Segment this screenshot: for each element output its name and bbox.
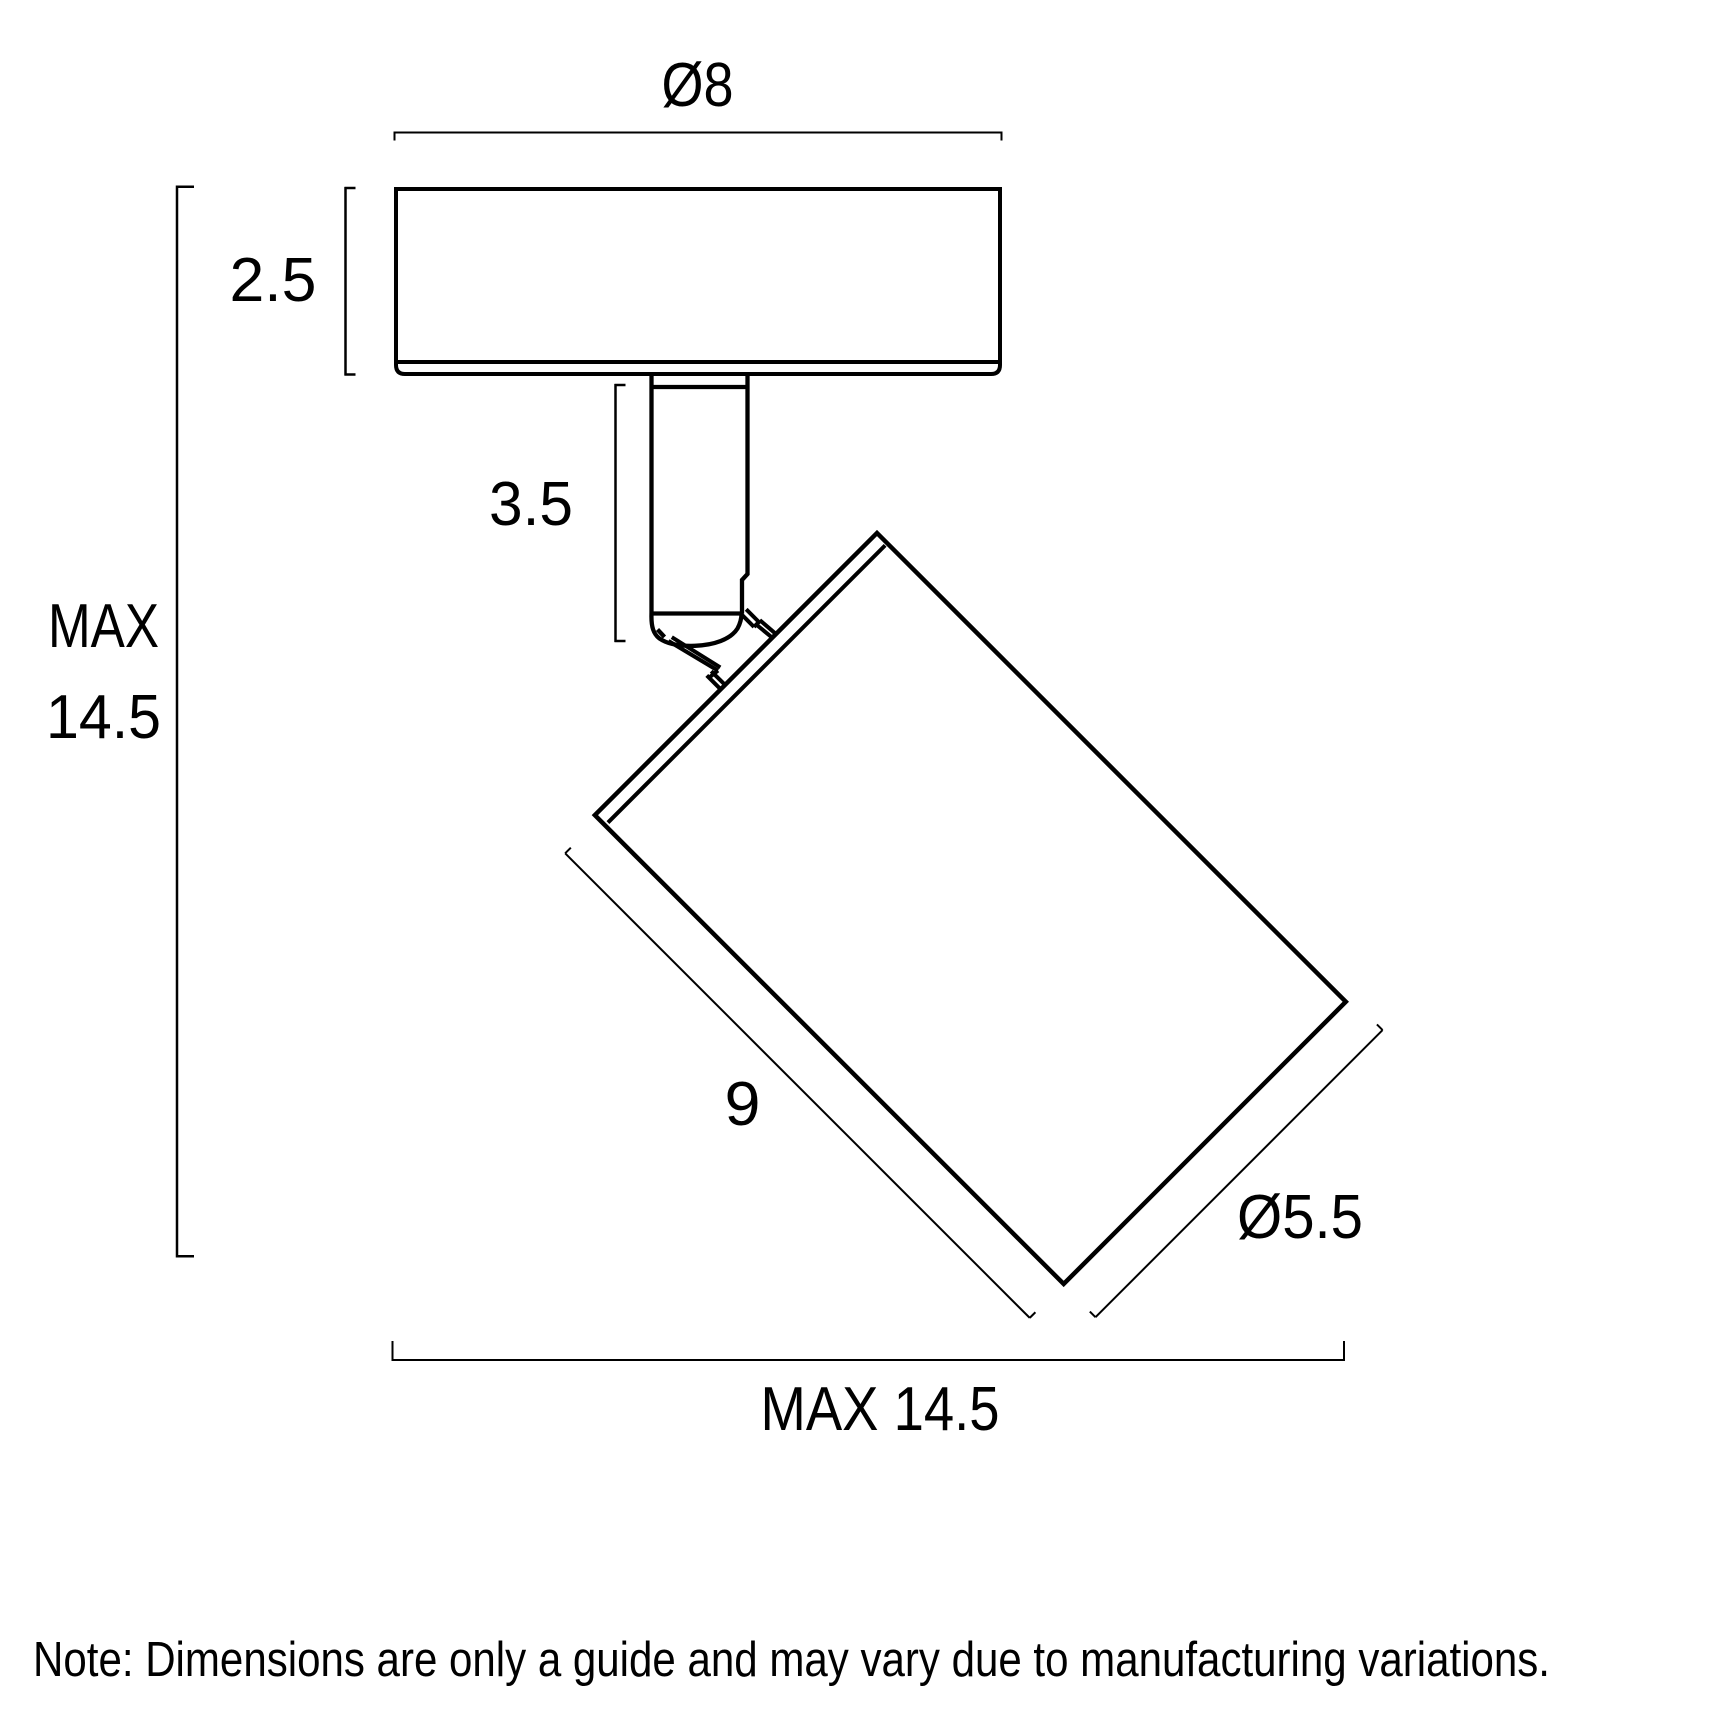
svg-text:Ø8: Ø8 [662, 51, 734, 120]
svg-text:14.5: 14.5 [46, 683, 161, 752]
svg-text:Note: Dimensions are only a gu: Note: Dimensions are only a guide and ma… [33, 1633, 1550, 1687]
svg-text:9: 9 [725, 1070, 761, 1139]
svg-text:Ø5.5: Ø5.5 [1237, 1183, 1363, 1252]
svg-text:2.5: 2.5 [230, 246, 317, 315]
svg-text:MAX 14.5: MAX 14.5 [761, 1375, 1000, 1444]
svg-text:3.5: 3.5 [489, 470, 573, 539]
svg-text:MAX: MAX [48, 592, 159, 661]
